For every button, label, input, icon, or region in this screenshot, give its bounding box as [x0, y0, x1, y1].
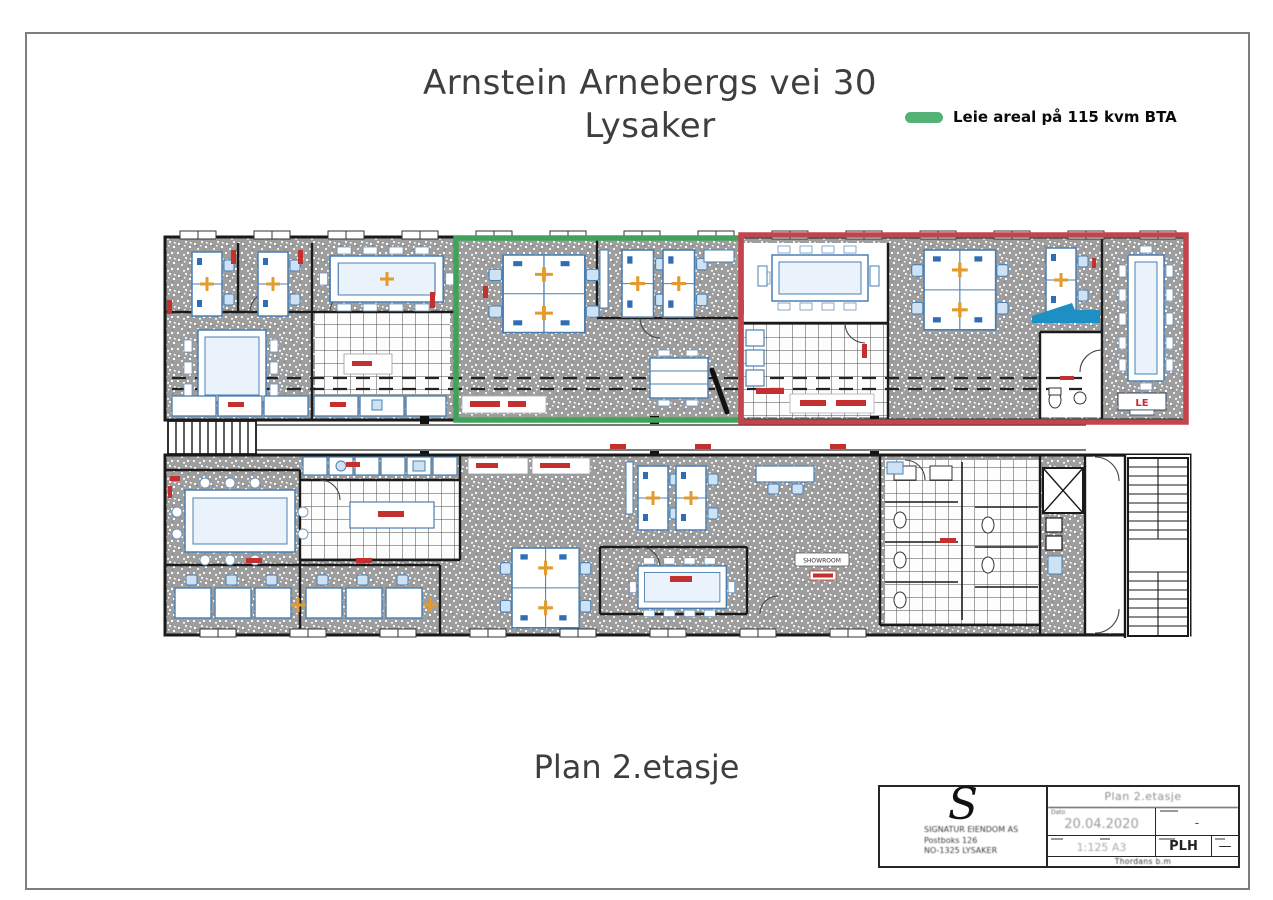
bottom-wing: SHOWROOM [165, 444, 1190, 638]
measure-cell: - [1156, 808, 1238, 835]
date-cell: Dato 20.04.2020 [1048, 808, 1156, 835]
drawn-by-cell: PLH [1156, 836, 1212, 856]
title-block-company: S SIGNATUR EIENDOM AS Postboks 126 NO-13… [880, 787, 1048, 866]
top-wing: LE [165, 231, 1185, 420]
scale-cell: 1:125 A3 [1048, 836, 1156, 856]
company-address: SIGNATUR EIENDOM AS Postboks 126 NO-1325… [924, 825, 1018, 856]
title-block: S SIGNATUR EIENDOM AS Postboks 126 NO-13… [878, 785, 1240, 868]
title-block-footer: Thordans b.m [1048, 857, 1238, 866]
revision-cell: — [1212, 836, 1238, 856]
company-logo: S [948, 785, 978, 825]
staircase [1128, 458, 1188, 636]
drawn-by-value: PLH [1156, 839, 1211, 854]
plan-caption: Plan 2.etasje [0, 748, 1273, 786]
measure-value: - [1156, 816, 1238, 831]
date-value: 20.04.2020 [1048, 817, 1155, 832]
svg-text:SHOWROOM: SHOWROOM [803, 558, 841, 565]
drawing-sheet: Arnstein Arnebergs vei 30 Lysaker Leie a… [0, 0, 1273, 900]
svg-text:LE: LE [1135, 398, 1148, 409]
revision-value: — [1212, 839, 1238, 854]
drawing-title: Plan 2.etasje [1048, 787, 1238, 808]
title-block-fields: Plan 2.etasje Dato 20.04.2020 - 1:125 A3 [1048, 787, 1238, 866]
scale-value: 1:125 A3 [1048, 841, 1155, 854]
